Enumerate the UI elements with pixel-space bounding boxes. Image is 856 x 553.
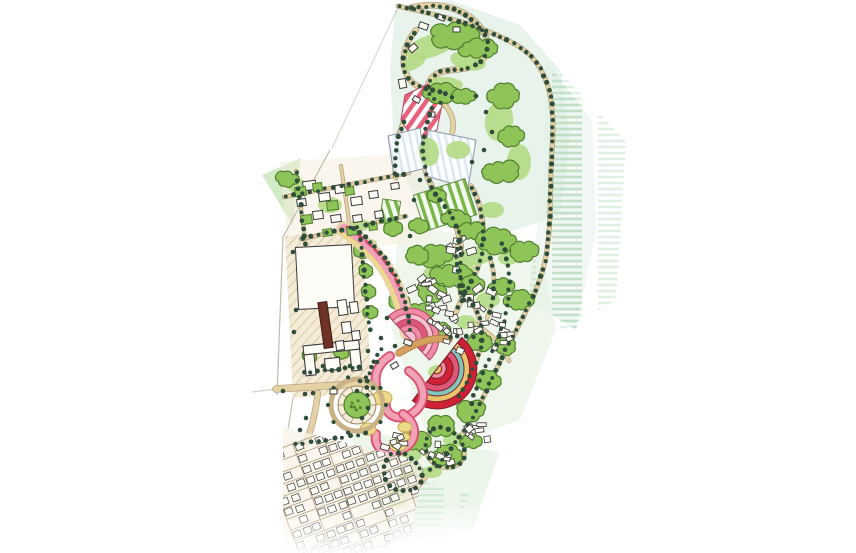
- master-plan-canvas: Hand-drawn landscape master plan sketch: [0, 0, 856, 553]
- master-plan-figure: Hand-drawn landscape master plan sketch: [0, 0, 856, 553]
